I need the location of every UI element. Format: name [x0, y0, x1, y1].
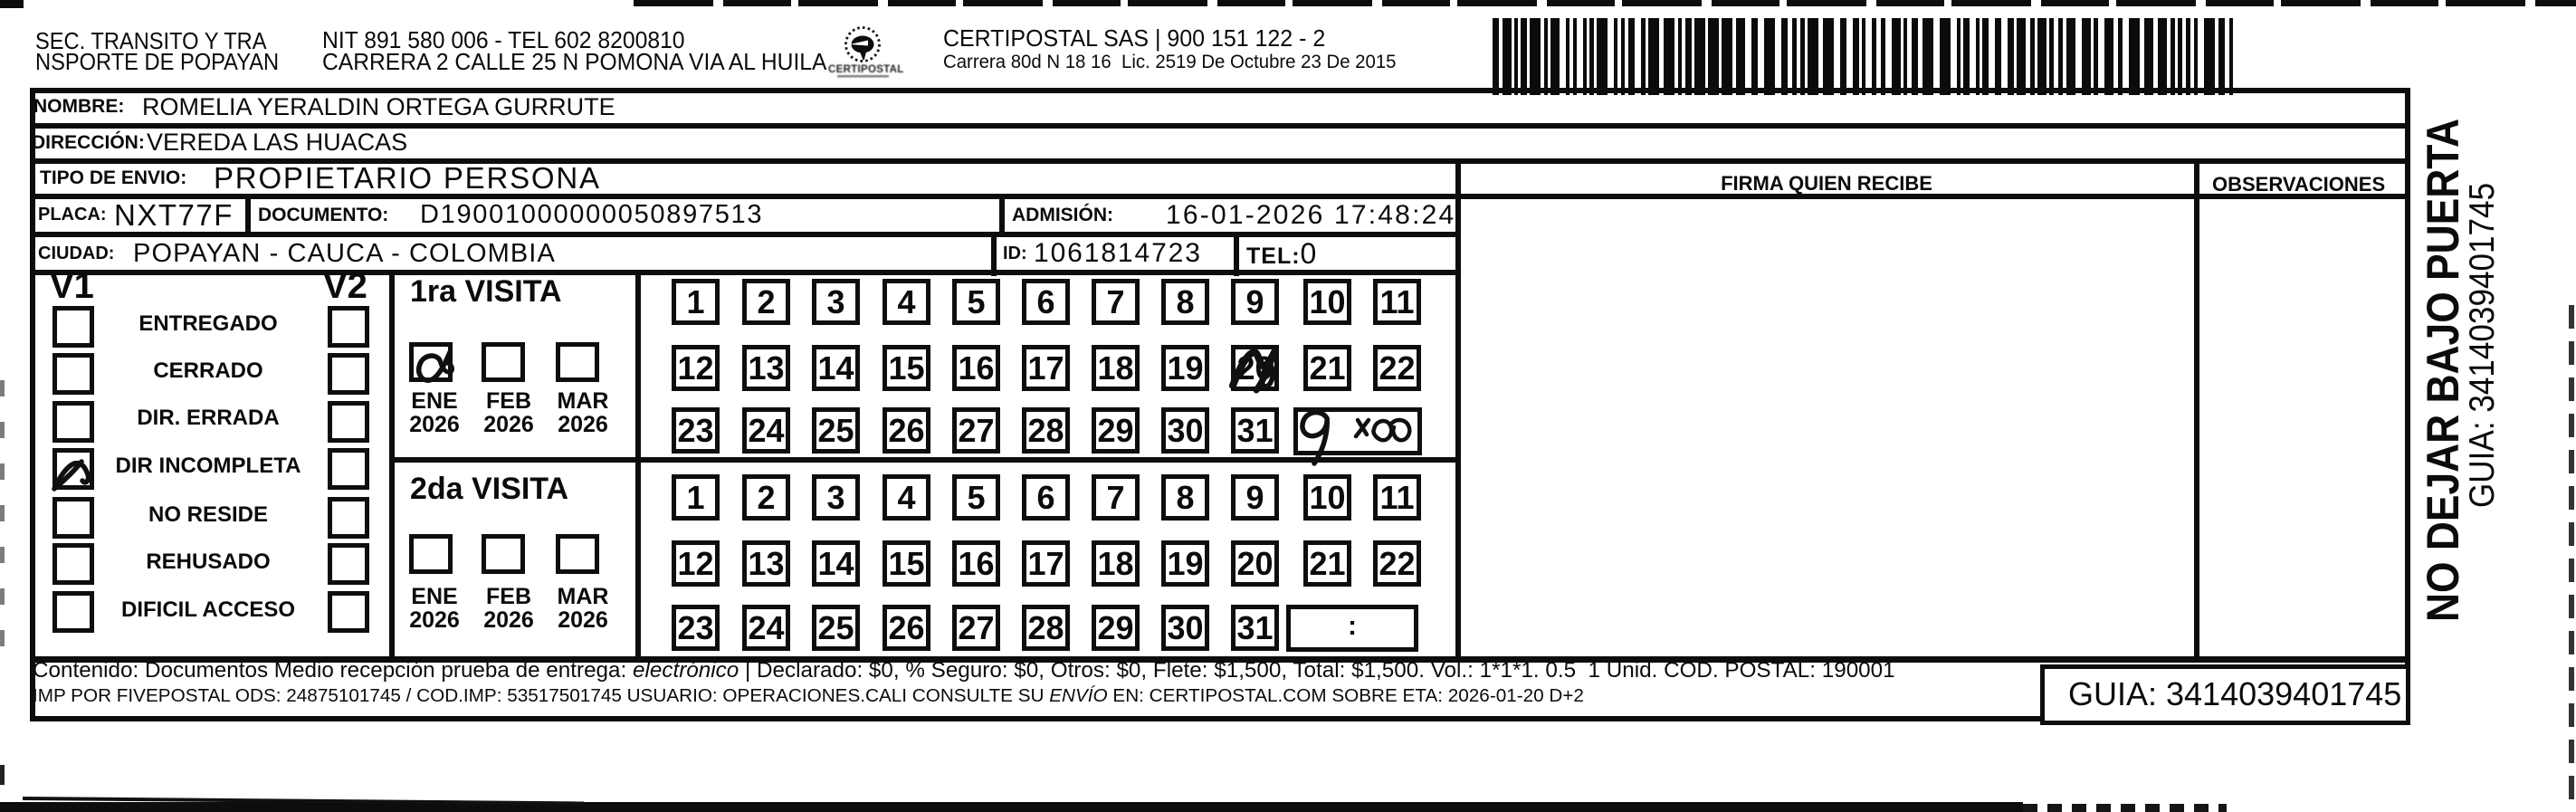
- svg-text:CERTIPOSTAL: CERTIPOSTAL: [828, 64, 904, 75]
